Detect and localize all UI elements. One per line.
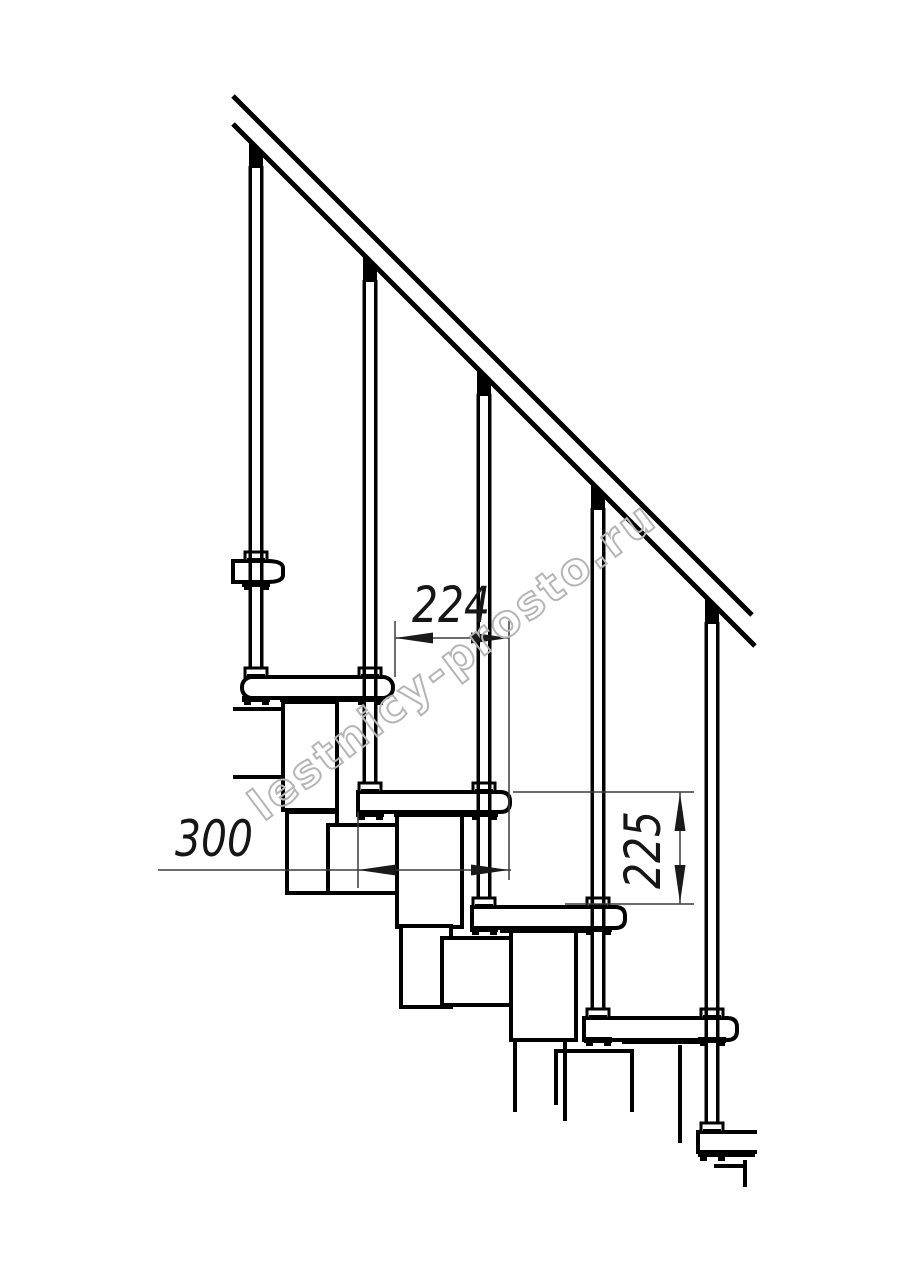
module-box-riser-3	[511, 928, 576, 1040]
handrail	[233, 96, 755, 646]
connector-t2-b2	[356, 811, 384, 820]
mount-strip-tread-2	[394, 811, 478, 817]
module-box-under-tread-4-cut	[556, 1051, 632, 1112]
wedge-b5-t5	[703, 1129, 721, 1133]
arrow-224-left	[395, 633, 433, 644]
mount-strip-tread-1	[280, 696, 364, 702]
wedge-b2-t2	[361, 789, 379, 793]
connector-t3-b3	[470, 926, 498, 935]
wedge-b1-t1	[247, 674, 265, 678]
mount-strip-tread-5	[724, 1150, 755, 1157]
baluster-1-post-left	[249, 166, 253, 668]
tread-2	[358, 792, 510, 812]
connector-t1-b1	[242, 696, 270, 705]
tread-5-cut	[698, 1132, 757, 1152]
baluster-5-post-left	[705, 622, 709, 1123]
connector-t3-b4	[584, 926, 612, 935]
connector-t0-b1	[242, 581, 270, 590]
wedge-b3-t3	[475, 904, 493, 908]
baluster-4-post-right	[602, 508, 606, 1009]
module-box-riser-2	[397, 815, 462, 927]
handrail-bottom-line	[233, 124, 755, 646]
tread-4	[584, 1018, 737, 1040]
baluster-5-post-right	[716, 622, 720, 1123]
baluster-5	[705, 599, 720, 1123]
connector-t5-b5	[698, 1150, 726, 1161]
module-under-tread-5-cut-lines	[714, 1160, 747, 1187]
wedge-b4-t4	[589, 1015, 607, 1019]
connector-t4-b5	[698, 1037, 726, 1046]
dimension-label-step-rise: 225	[614, 811, 672, 889]
module-box-under-tread-3	[442, 938, 518, 1005]
connector-t4-b4	[584, 1037, 612, 1046]
mount-strip-tread-3	[500, 927, 590, 933]
handrail-top-line	[233, 96, 752, 615]
baluster-1-post-right	[260, 166, 264, 668]
connector-t2-b3	[470, 811, 498, 820]
baluster-1	[249, 143, 264, 668]
tread-0-upper-cut	[233, 561, 283, 582]
dimension-label-tread-depth: 300	[175, 810, 253, 868]
arrow-225-up	[675, 793, 686, 831]
drawing-canvas: 224 300 225 lestnicy-prosto.ru	[0, 0, 914, 1280]
module-box-under-tread-2	[328, 825, 406, 893]
arrow-225-down	[675, 865, 686, 903]
staircase-drawing: 224 300 225 lestnicy-prosto.ru	[0, 0, 914, 1280]
mount-strip-tread-4	[622, 1038, 706, 1044]
